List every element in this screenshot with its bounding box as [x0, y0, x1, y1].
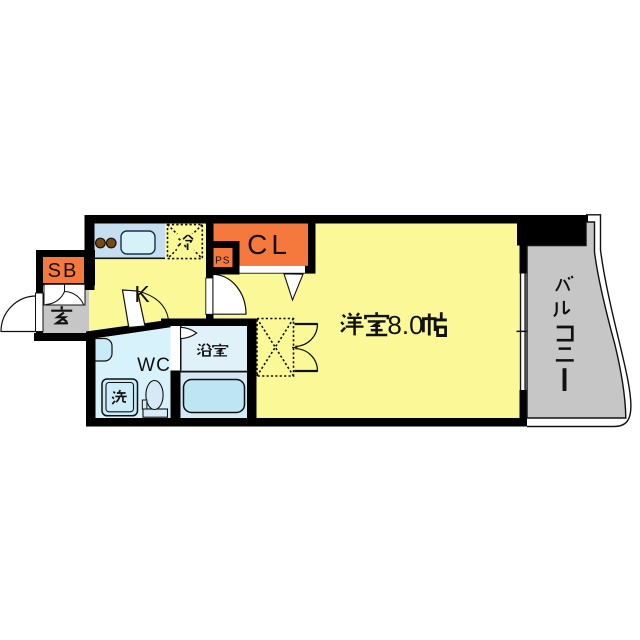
svg-text:K: K [134, 281, 150, 307]
svg-text:SB: SB [48, 260, 79, 282]
svg-text:8.0: 8.0 [387, 310, 423, 340]
svg-text:WC: WC [137, 355, 171, 376]
svg-text:CL: CL [247, 229, 291, 260]
svg-text:PS: PS [215, 256, 230, 267]
